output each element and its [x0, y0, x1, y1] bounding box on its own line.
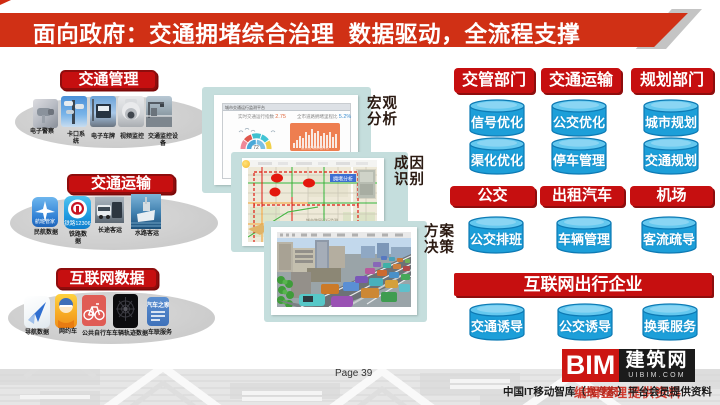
- svg-text:航班管家: 航班管家: [35, 218, 55, 225]
- svg-text:重点区域拥堵排名: 重点区域拥堵排名: [301, 145, 329, 150]
- svg-text:汽车之家: 汽车之家: [147, 301, 169, 309]
- svg-text:拥堵分析: 拥堵分析: [333, 176, 353, 183]
- svg-text:72: 72: [253, 145, 259, 151]
- svg-text:铁路12306: 铁路12306: [64, 219, 90, 227]
